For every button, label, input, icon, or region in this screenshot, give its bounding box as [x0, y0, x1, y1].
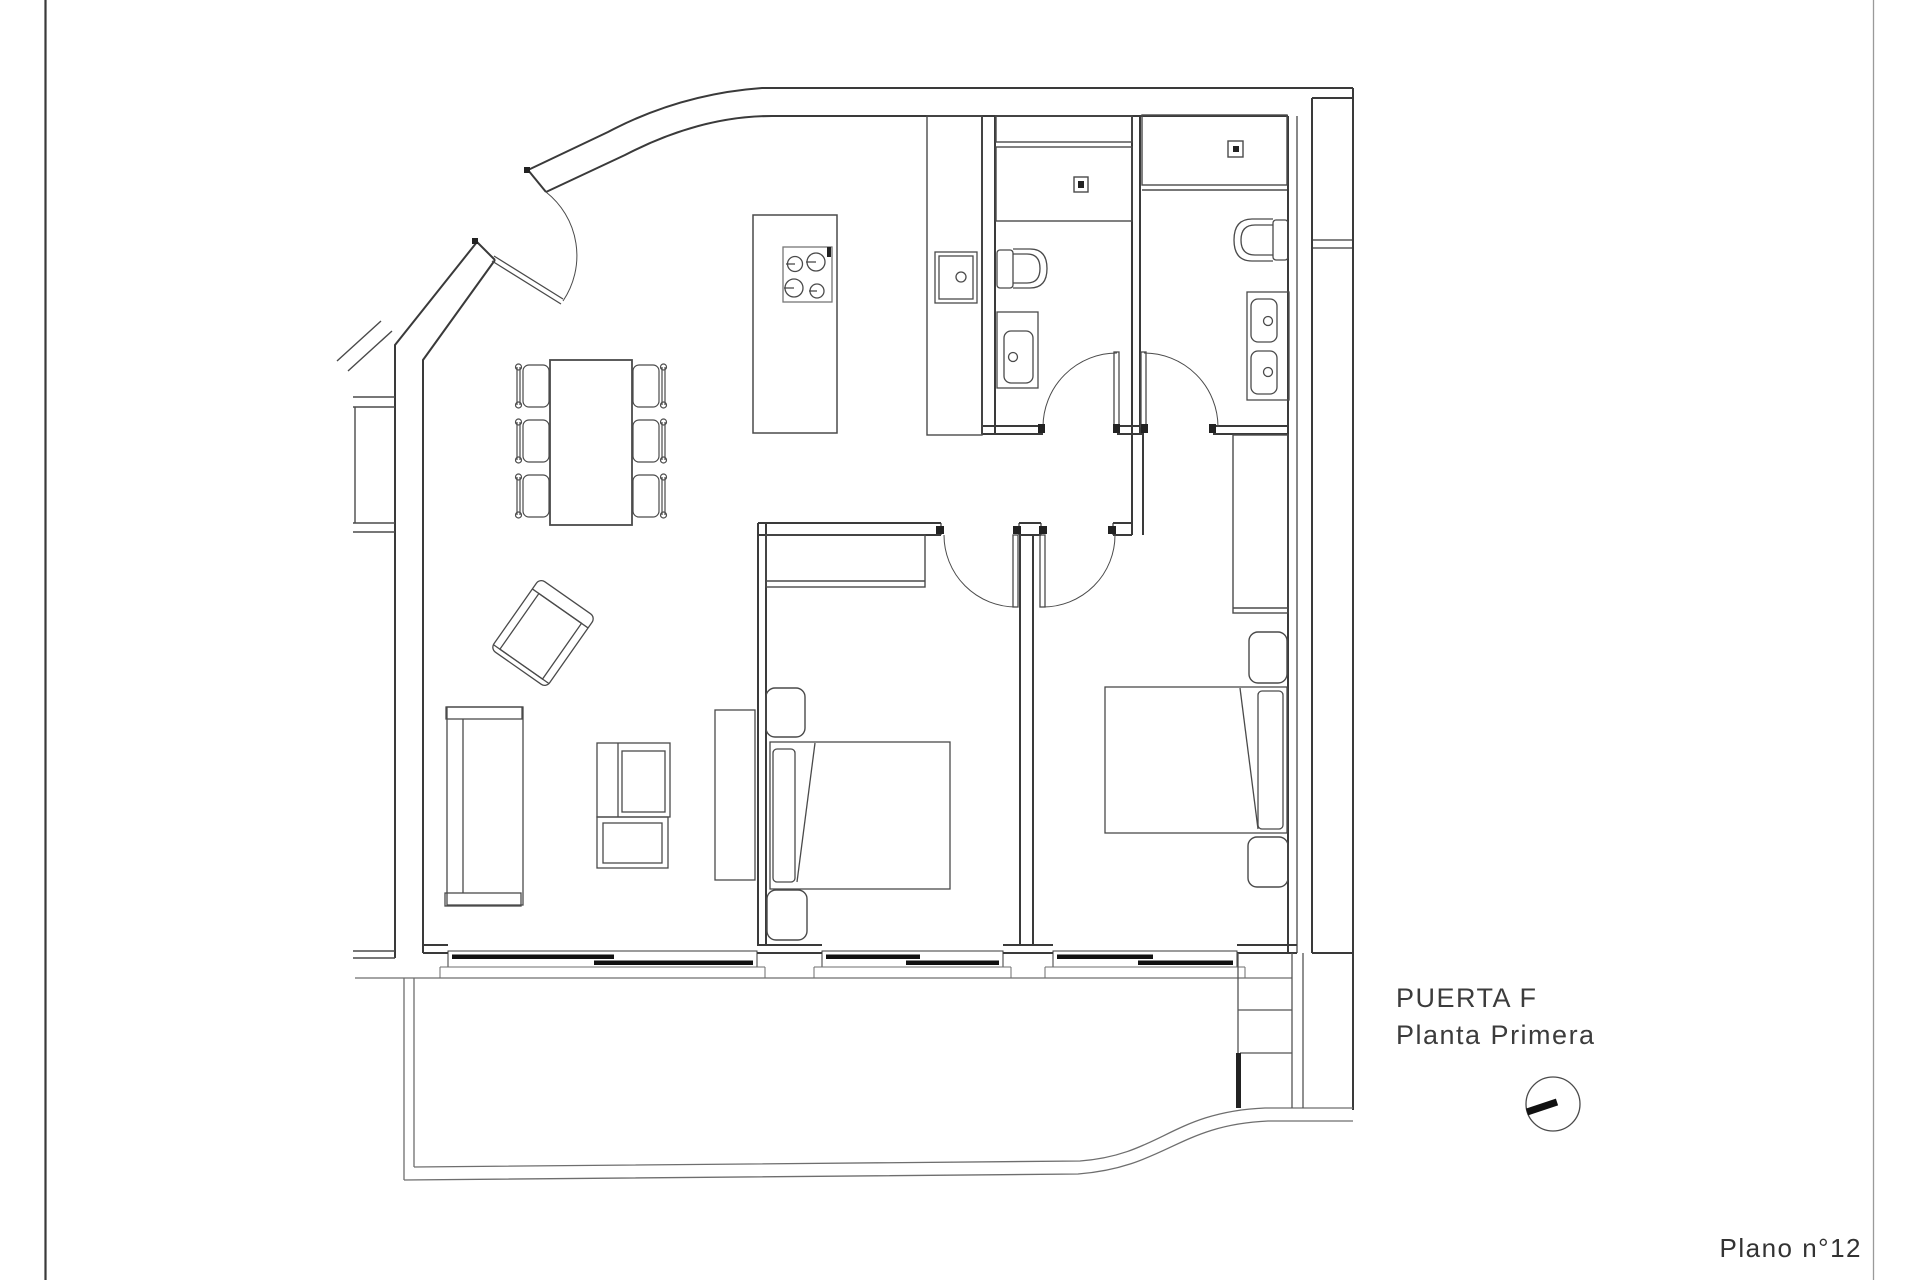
- bathroom-1-shower: [996, 116, 1132, 221]
- dining-chairs: [516, 364, 667, 518]
- bedroom-2-bed: [1105, 687, 1287, 833]
- bathroom-2-toilet: [1234, 219, 1288, 261]
- party-wall-stubs: [337, 321, 395, 958]
- bedroom-1-nightstand-bottom: [767, 890, 807, 940]
- bedroom-2-door: [1039, 526, 1116, 607]
- living-room-window: [440, 951, 765, 978]
- coffee-table-unit: [597, 743, 670, 868]
- dining-chair: [633, 364, 667, 408]
- bedroom-1-nightstand-top: [766, 688, 805, 737]
- tv-cabinet: [715, 710, 755, 880]
- bathroom-1-door: [1038, 352, 1120, 433]
- plan-title-door: PUERTA F: [1396, 980, 1596, 1017]
- bedroom-2-window: [1045, 951, 1245, 978]
- dining-chair: [633, 474, 667, 518]
- bathroom-1-vanity: [997, 312, 1038, 388]
- bedroom-2-wardrobe: [1233, 435, 1288, 613]
- dining-table: [550, 360, 632, 525]
- sofa: [445, 707, 523, 906]
- bedroom-2-nightstand-top: [1249, 632, 1287, 683]
- bathroom-2-vanity: [1247, 292, 1289, 400]
- drawing-sheet: PUERTA F Planta Primera Plano n°12: [0, 0, 1920, 1280]
- bathroom-1-toilet: [997, 249, 1047, 288]
- floor-plan-drawing: [0, 0, 1920, 1280]
- dining-chair: [633, 419, 667, 463]
- bedroom-1-window: [814, 951, 1011, 978]
- bedroom-2-nightstand-bottom: [1248, 837, 1288, 887]
- north-indicator-icon: [1526, 1077, 1580, 1131]
- terrace-column: [1236, 953, 1303, 1108]
- page-borders: [46, 0, 1874, 1280]
- plan-title: PUERTA F Planta Primera: [1396, 980, 1596, 1055]
- sheet-number-label: Plano n°12: [1690, 1231, 1862, 1267]
- bedroom-1-door: [936, 526, 1021, 607]
- cooktop: [783, 247, 832, 302]
- dining-chair: [516, 419, 550, 463]
- entrance-door: [472, 167, 577, 304]
- bathroom-2-door: [1141, 352, 1218, 433]
- bathroom-2-shower: [1142, 115, 1287, 190]
- armchair: [490, 578, 595, 687]
- dining-chair: [516, 474, 550, 518]
- kitchen-island: [753, 215, 837, 433]
- kitchen-sink: [935, 252, 977, 303]
- bedroom-1-bed: [770, 742, 950, 889]
- bedroom-1-wardrobe: [766, 535, 925, 587]
- balcony: [355, 978, 1353, 1180]
- plan-title-floor: Planta Primera: [1396, 1017, 1596, 1054]
- dining-chair: [516, 364, 550, 408]
